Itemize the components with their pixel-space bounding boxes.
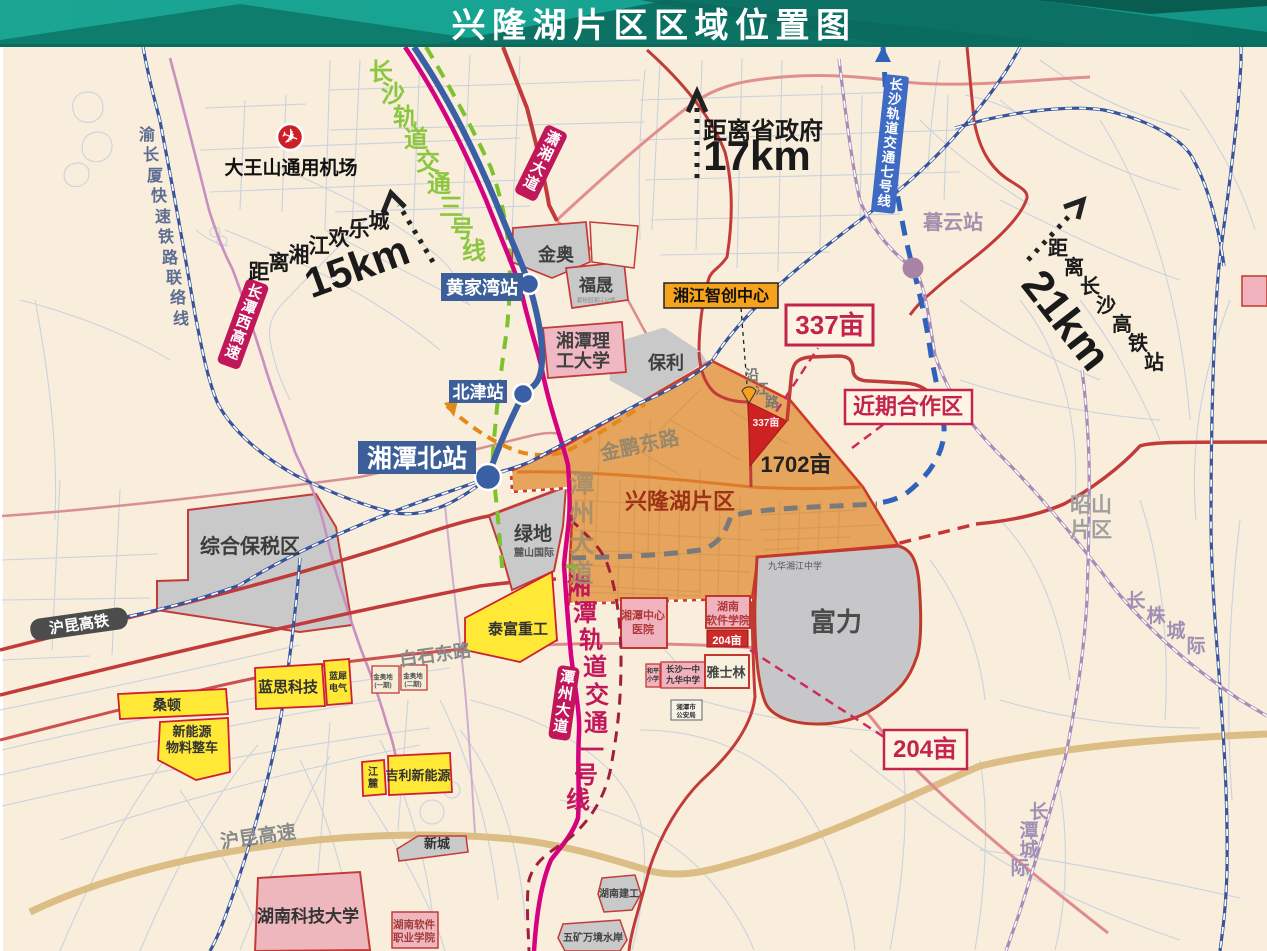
svg-text:通: 通 (584, 710, 608, 737)
svg-text:综合保税区: 综合保税区 (200, 534, 300, 558)
svg-text:九华中学: 九华中学 (665, 675, 701, 685)
svg-text:麓: 麓 (368, 777, 378, 790)
svg-text:雅士林: 雅士林 (706, 665, 745, 680)
svg-text:职业学院: 职业学院 (393, 931, 435, 944)
svg-text:渝: 渝 (139, 125, 156, 144)
svg-text:和平: 和平 (646, 667, 659, 675)
svg-text:长: 长 (143, 145, 160, 164)
svg-text:片区: 片区 (1070, 519, 1112, 542)
svg-text:道: 道 (568, 559, 593, 588)
svg-text:金奥地: 金奥地 (402, 671, 423, 680)
svg-text:长: 长 (1126, 590, 1146, 612)
svg-text:337亩: 337亩 (795, 310, 864, 340)
svg-text:号: 号 (574, 762, 598, 789)
svg-text:蓝思科技: 蓝思科技 (258, 678, 319, 696)
svg-text:厦: 厦 (147, 167, 164, 185)
svg-text:湘潭中心: 湘潭中心 (621, 608, 665, 622)
svg-text:近期合作区: 近期合作区 (853, 394, 963, 419)
svg-text:北津站: 北津站 (453, 382, 504, 402)
svg-text:金奥地: 金奥地 (372, 672, 393, 681)
svg-text:湖南建工: 湖南建工 (599, 887, 639, 900)
svg-text:一: 一 (580, 737, 604, 764)
svg-text:小学: 小学 (646, 675, 659, 683)
svg-text:(二期): (二期) (404, 679, 421, 688)
svg-text:保利: 保利 (647, 352, 684, 373)
svg-text:离: 离 (269, 251, 290, 275)
svg-text:五矿万境水岸: 五矿万境水岸 (563, 931, 623, 944)
svg-text:站: 站 (1144, 350, 1164, 374)
svg-text:碧桂园湘江公馆: 碧桂园湘江公馆 (577, 296, 616, 304)
svg-text:际: 际 (1010, 857, 1029, 879)
svg-text:株: 株 (1146, 604, 1166, 627)
svg-text:交: 交 (585, 681, 609, 709)
svg-text:络: 络 (170, 288, 186, 307)
svg-text:际: 际 (1186, 635, 1205, 657)
svg-text:潭: 潭 (569, 470, 594, 498)
svg-text:医院: 医院 (632, 622, 654, 636)
svg-text:潭: 潭 (1019, 820, 1038, 842)
svg-text:线: 线 (173, 309, 189, 328)
svg-text:富力: 富力 (810, 607, 862, 637)
svg-text:湘潭北站: 湘潭北站 (367, 444, 467, 473)
svg-text:大: 大 (569, 530, 594, 558)
svg-text:17km: 17km (703, 132, 810, 179)
svg-text:长: 长 (1029, 801, 1049, 823)
svg-text:九华湘江中学: 九华湘江中学 (768, 560, 822, 571)
svg-text:吉利新能源: 吉利新能源 (385, 768, 450, 783)
svg-text:1702亩: 1702亩 (761, 452, 832, 477)
svg-text:线: 线 (462, 238, 486, 265)
svg-text:湘潭理: 湘潭理 (556, 330, 610, 351)
svg-text:道: 道 (583, 653, 607, 681)
svg-text:物料整车: 物料整车 (166, 740, 218, 755)
svg-text:湘潭市: 湘潭市 (676, 702, 696, 711)
svg-text:潭: 潭 (573, 600, 597, 627)
svg-text:绿地: 绿地 (514, 522, 552, 545)
svg-text:长沙一中: 长沙一中 (666, 664, 700, 674)
svg-text:路: 路 (162, 248, 179, 267)
svg-text:204亩: 204亩 (712, 633, 741, 647)
svg-text:速: 速 (155, 208, 171, 226)
svg-text:金奥: 金奥 (537, 244, 575, 265)
svg-text:线: 线 (566, 787, 590, 814)
svg-text:桑顿: 桑顿 (153, 697, 181, 713)
svg-text:城: 城 (369, 209, 390, 233)
svg-text:湖南: 湖南 (717, 599, 739, 613)
svg-text:湘江智创中心: 湘江智创中心 (673, 286, 769, 305)
svg-text:湖南软件: 湖南软件 (393, 918, 435, 931)
svg-text:204亩: 204亩 (893, 735, 957, 763)
svg-text:大王山通用机场: 大王山通用机场 (224, 156, 357, 179)
svg-text:路: 路 (765, 394, 780, 410)
svg-text:电气: 电气 (329, 682, 347, 693)
svg-text:铁: 铁 (158, 227, 174, 246)
svg-text:泰富重工: 泰富重工 (487, 620, 548, 638)
svg-text:软件学院: 软件学院 (706, 613, 750, 627)
svg-text:暮云站: 暮云站 (922, 210, 983, 234)
svg-text:福晟: 福晟 (578, 275, 613, 295)
svg-text:快: 快 (151, 186, 168, 205)
svg-text:州: 州 (569, 500, 594, 528)
svg-text:新能源: 新能源 (172, 724, 211, 739)
svg-text:337亩: 337亩 (753, 416, 780, 429)
svg-text:距: 距 (249, 261, 270, 284)
svg-text:城: 城 (1166, 619, 1185, 642)
svg-text:(一期): (一期) (374, 680, 391, 689)
svg-text:蓝犀: 蓝犀 (329, 670, 347, 681)
svg-text:联: 联 (166, 269, 182, 287)
svg-text:麓山国际: 麓山国际 (514, 546, 554, 559)
svg-text:轨: 轨 (579, 626, 603, 654)
svg-text:新城: 新城 (424, 836, 450, 851)
svg-text:黄家湾站: 黄家湾站 (446, 277, 518, 298)
svg-text:兴隆湖片区区域位置图: 兴隆湖片区区域位置图 (452, 7, 857, 45)
svg-text:兴隆湖片区: 兴隆湖片区 (625, 489, 735, 514)
svg-text:昭山: 昭山 (1070, 494, 1112, 517)
svg-text:湖南科技大学: 湖南科技大学 (257, 906, 359, 926)
svg-text:江: 江 (368, 765, 378, 778)
svg-text:工大学: 工大学 (556, 350, 610, 371)
svg-text:公安局: 公安局 (676, 710, 696, 719)
